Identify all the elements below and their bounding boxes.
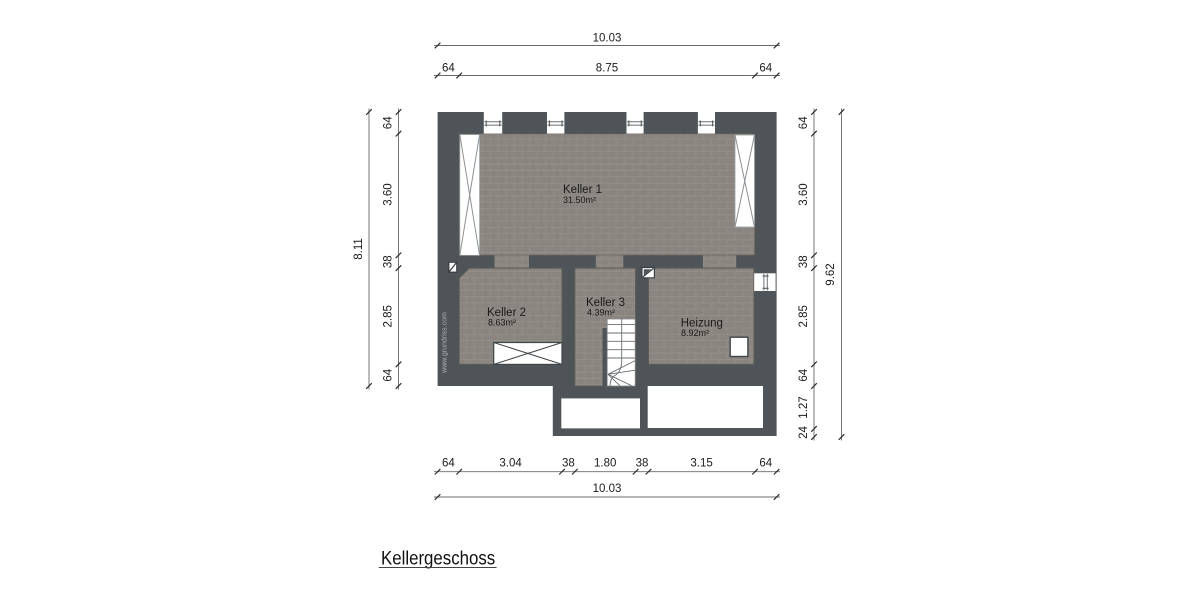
svg-text:64: 64: [798, 368, 810, 381]
svg-text:64: 64: [759, 458, 772, 470]
svg-text:38: 38: [383, 255, 395, 268]
svg-text:Kellergeschoss: Kellergeschoss: [381, 548, 495, 569]
svg-text:8.63m²: 8.63m²: [488, 318, 516, 328]
svg-text:2.85: 2.85: [798, 305, 810, 327]
svg-text:64: 64: [759, 63, 772, 75]
svg-text:3.04: 3.04: [499, 458, 522, 470]
svg-text:10.03: 10.03: [593, 33, 622, 45]
svg-text:38: 38: [798, 255, 810, 268]
svg-text:3.15: 3.15: [690, 458, 712, 470]
svg-text:1.80: 1.80: [594, 458, 616, 470]
svg-text:8.92m²: 8.92m²: [681, 328, 709, 338]
svg-text:10.03: 10.03: [593, 483, 622, 495]
svg-text:64: 64: [383, 116, 395, 129]
svg-text:8.11: 8.11: [353, 238, 365, 260]
svg-text:www.grundriss.com: www.grundriss.com: [442, 312, 449, 374]
svg-text:8.75: 8.75: [596, 63, 618, 75]
svg-text:64: 64: [383, 368, 395, 381]
svg-text:2.85: 2.85: [383, 305, 395, 327]
svg-text:1.27: 1.27: [798, 396, 810, 418]
svg-text:9.62: 9.62: [825, 263, 837, 285]
svg-text:38: 38: [562, 458, 575, 470]
svg-text:64: 64: [798, 116, 810, 129]
svg-text:64: 64: [442, 63, 455, 75]
svg-text:64: 64: [442, 458, 455, 470]
svg-text:31.50m²: 31.50m²: [563, 195, 596, 205]
svg-text:4.39m²: 4.39m²: [587, 308, 615, 318]
svg-text:3.60: 3.60: [798, 183, 810, 205]
svg-text:24: 24: [798, 426, 810, 439]
svg-text:3.60: 3.60: [383, 183, 395, 205]
svg-text:38: 38: [636, 458, 649, 470]
